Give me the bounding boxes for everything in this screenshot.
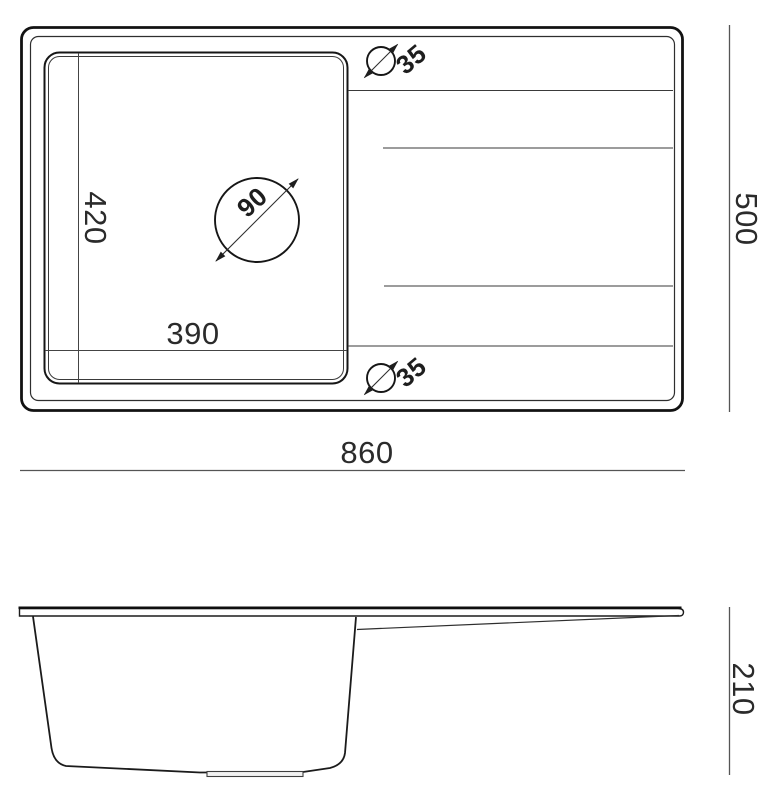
drain-boss [207, 772, 303, 777]
tap-hole-bottom-diameter-line [365, 362, 398, 395]
overall-width-label: 860 [340, 435, 393, 470]
top-view [22, 28, 683, 411]
drainboard-underside-line [357, 616, 679, 630]
rim-profile [20, 609, 684, 617]
sink-outer-edge [22, 28, 683, 411]
tap-hole-top-diameter-label: 35 [390, 38, 432, 80]
overall-depth-label: 500 [729, 192, 764, 245]
sink-technical-drawing: 390 420 90 35 35 860 500 210 [0, 0, 781, 800]
tap-hole-bottom-diameter-label: 35 [390, 351, 432, 393]
bowl-width-label: 390 [166, 316, 219, 351]
drawing-svg: 390 420 90 35 35 860 500 210 [0, 0, 781, 800]
height-label: 210 [726, 662, 761, 715]
bowl-profile [33, 617, 356, 773]
drain-diameter-label: 90 [231, 181, 273, 223]
side-view [19, 608, 684, 777]
bowl-depth-label: 420 [78, 191, 113, 244]
